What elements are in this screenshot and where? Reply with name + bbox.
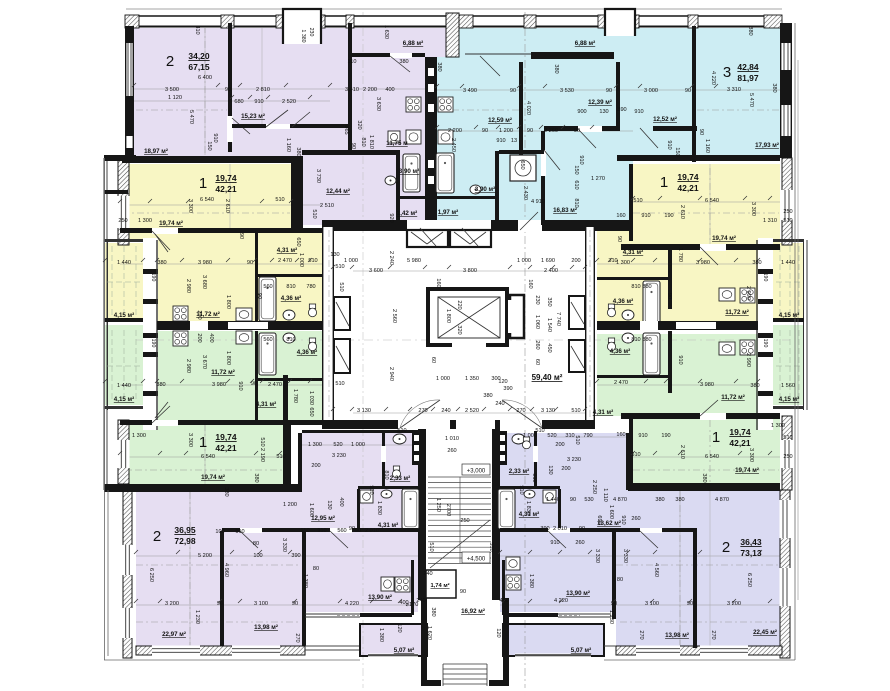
svg-text:90: 90 [666,293,672,299]
svg-text:3 330: 3 330 [594,549,600,563]
svg-text:780: 780 [306,284,315,290]
svg-text:910: 910 [237,381,243,390]
svg-text:910: 910 [212,133,218,142]
svg-text:6 400: 6 400 [198,75,212,81]
svg-text:90: 90 [482,128,488,134]
svg-text:1 380: 1 380 [528,574,534,588]
svg-text:120: 120 [396,623,402,632]
svg-text:81,97: 81,97 [737,73,759,83]
svg-text:810: 810 [286,284,295,290]
svg-text:910: 910 [677,355,683,364]
svg-text:3,90 м²: 3,90 м² [399,168,419,175]
svg-text:36,43: 36,43 [740,537,762,547]
svg-text:240: 240 [423,571,432,577]
svg-text:3 490: 3 490 [463,88,477,94]
svg-text:90: 90 [616,236,622,242]
svg-text:1 000: 1 000 [517,258,531,264]
svg-text:2 610: 2 610 [679,205,685,219]
svg-text:510: 510 [783,218,792,224]
svg-text:560: 560 [337,528,346,534]
svg-text:310: 310 [194,25,200,34]
svg-text:270: 270 [294,633,300,642]
svg-text:1 600: 1 600 [608,505,614,519]
svg-text:380: 380 [399,59,408,65]
svg-text:130: 130 [326,500,332,509]
svg-text:19,74 м²: 19,74 м² [735,467,759,474]
svg-text:5,07 м²: 5,07 м² [394,647,414,654]
svg-text:1 200: 1 200 [283,502,297,508]
svg-text:3 980: 3 980 [700,382,714,388]
svg-text:160: 160 [527,279,533,288]
svg-text:73,13: 73,13 [740,548,762,558]
svg-text:610: 610 [573,180,579,189]
svg-text:390: 390 [540,526,549,532]
svg-text:2 610: 2 610 [679,445,685,459]
svg-text:110: 110 [348,59,357,65]
svg-text:19,74: 19,74 [677,172,699,182]
svg-text:1 780: 1 780 [677,248,683,262]
svg-text:90: 90 [217,601,223,607]
svg-text:650: 650 [295,237,301,246]
svg-text:1,42 м²: 1,42 м² [397,210,417,217]
svg-text:520: 520 [333,442,342,448]
svg-text:270: 270 [516,408,525,414]
svg-text:200: 200 [196,310,202,319]
svg-text:60: 60 [534,359,540,365]
svg-text:19,74 м²: 19,74 м² [712,235,736,242]
svg-text:90: 90 [687,601,693,607]
svg-text:920: 920 [388,213,394,222]
svg-text:1 300: 1 300 [771,423,785,429]
svg-text:220: 220 [456,300,462,309]
svg-text:6,88 м²: 6,88 м² [403,40,423,47]
svg-text:3 230: 3 230 [567,457,581,463]
svg-text:1 000: 1 000 [351,442,365,448]
svg-text:520: 520 [547,433,556,439]
svg-text:150: 150 [206,141,212,150]
svg-text:1 830: 1 830 [525,501,531,515]
svg-text:4,36 м²: 4,36 м² [613,298,633,305]
svg-text:3 800: 3 800 [463,268,477,274]
svg-text:260: 260 [447,448,456,454]
svg-text:3 200: 3 200 [165,601,179,607]
svg-text:120: 120 [498,379,507,385]
svg-text:42,21: 42,21 [729,438,751,448]
svg-text:3 300: 3 300 [750,202,756,216]
svg-text:4 220: 4 220 [710,71,716,85]
svg-text:1 230: 1 230 [194,610,200,624]
svg-text:2 260: 2 260 [544,128,558,134]
svg-text:160: 160 [435,278,441,287]
svg-text:1 540: 1 540 [546,318,552,332]
svg-text:3 680: 3 680 [201,275,207,289]
svg-text:1 300: 1 300 [132,433,146,439]
svg-text:1 200: 1 200 [499,128,513,134]
svg-text:90: 90 [225,87,231,93]
svg-text:2 470: 2 470 [278,258,292,264]
svg-text:4,31 м²: 4,31 м² [256,401,276,408]
svg-text:100: 100 [253,553,262,559]
svg-text:2 520: 2 520 [282,99,296,105]
svg-text:17,93 м²: 17,93 м² [755,142,779,149]
svg-text:16,92 м²: 16,92 м² [461,608,485,615]
svg-text:1 380: 1 380 [302,574,308,588]
svg-text:380: 380 [750,383,759,389]
svg-text:13,98 м²: 13,98 м² [254,624,278,631]
svg-text:680: 680 [234,99,243,105]
svg-text:12,44 м²: 12,44 м² [326,188,350,195]
svg-text:380: 380 [430,607,436,616]
svg-text:390: 390 [617,107,626,113]
svg-text:510: 510 [308,258,317,264]
svg-text:3 500: 3 500 [165,87,179,93]
svg-text:3 100: 3 100 [254,601,268,607]
svg-text:250: 250 [783,454,792,460]
svg-text:1 800: 1 800 [225,351,231,365]
svg-text:270: 270 [418,408,427,414]
svg-text:810: 810 [631,337,640,343]
svg-text:90: 90 [355,528,361,534]
svg-text:6 540: 6 540 [200,197,214,203]
svg-text:5 980: 5 980 [407,258,421,264]
svg-text:1,74 м²: 1,74 м² [430,582,449,589]
svg-text:190: 190 [762,273,768,282]
svg-text:900: 900 [577,109,586,115]
svg-text:1 440: 1 440 [117,260,131,266]
svg-text:510: 510 [571,408,580,414]
svg-text:42,21: 42,21 [677,183,699,193]
svg-text:2 610: 2 610 [224,199,230,213]
svg-text:90: 90 [611,601,617,607]
svg-text:250: 250 [118,218,127,224]
svg-text:90: 90 [698,129,704,135]
svg-text:1 010: 1 010 [445,436,459,442]
svg-text:510: 510 [397,428,406,434]
svg-text:1 800: 1 800 [225,295,231,309]
svg-text:200: 200 [196,333,202,342]
svg-text:22,97 м²: 22,97 м² [162,631,186,638]
svg-text:2: 2 [722,539,730,556]
svg-text:560: 560 [263,284,272,290]
svg-text:380: 380 [483,393,492,399]
svg-text:1 620: 1 620 [426,626,432,640]
svg-text:910: 910 [368,485,374,494]
svg-text:1 300: 1 300 [308,442,322,448]
svg-text:4,15 м²: 4,15 м² [114,396,134,403]
svg-text:3 410: 3 410 [345,87,359,93]
svg-text:150: 150 [573,165,579,174]
svg-text:13,90 м²: 13,90 м² [566,590,590,597]
svg-text:380: 380 [223,487,229,496]
svg-text:130: 130 [599,109,608,115]
svg-text:3 310: 3 310 [727,87,741,93]
svg-text:1: 1 [199,434,207,451]
svg-text:450: 450 [546,343,552,352]
svg-text:80: 80 [313,566,319,572]
svg-text:810: 810 [286,337,295,343]
svg-text:90: 90 [460,589,466,595]
svg-text:4 870: 4 870 [715,497,729,503]
svg-text:42,21: 42,21 [215,443,237,453]
svg-text:910: 910 [634,109,643,115]
svg-text:4,31 м²: 4,31 м² [623,249,643,256]
svg-text:1 230: 1 230 [608,610,614,624]
svg-text:910: 910 [254,99,263,105]
svg-text:510: 510 [338,282,344,291]
svg-text:510: 510 [276,454,285,460]
svg-text:400: 400 [399,600,408,606]
svg-text:1 830: 1 830 [376,501,382,515]
svg-text:3 670: 3 670 [201,355,207,369]
svg-text:1 300: 1 300 [138,218,152,224]
svg-text:190: 190 [664,213,673,219]
svg-text:1 160: 1 160 [285,138,291,152]
svg-text:320: 320 [456,325,462,334]
svg-text:1 440: 1 440 [117,383,131,389]
svg-text:230: 230 [534,295,540,304]
svg-text:910: 910 [235,529,244,535]
svg-text:510: 510 [259,437,265,446]
svg-text:3 300: 3 300 [187,199,193,213]
svg-text:18,97 м²: 18,97 м² [144,148,168,155]
svg-text:240: 240 [441,408,450,414]
svg-text:810: 810 [631,284,640,290]
svg-text:16,83 м²: 16,83 м² [553,207,577,214]
svg-text:2,33 м²: 2,33 м² [390,475,410,482]
svg-text:3 130: 3 130 [541,408,555,414]
svg-text:6 540: 6 540 [705,198,719,204]
svg-text:1 300: 1 300 [616,260,630,266]
svg-text:650: 650 [300,528,309,534]
svg-text:3 330: 3 330 [622,549,628,563]
svg-text:1 060: 1 060 [534,315,540,329]
svg-text:2 980: 2 980 [185,279,191,293]
svg-text:60: 60 [430,357,436,363]
svg-text:380: 380 [295,147,301,156]
svg-text:4,31 м²: 4,31 м² [378,522,398,529]
svg-text:90: 90 [350,143,356,149]
svg-text:1 380: 1 380 [378,628,384,642]
svg-text:11,72 м²: 11,72 м² [725,309,749,316]
svg-text:880: 880 [642,337,651,343]
svg-text:510: 510 [488,542,494,551]
svg-text:380: 380 [701,473,707,482]
svg-text:160: 160 [616,213,625,219]
svg-text:200: 200 [571,258,580,264]
svg-text:3 100: 3 100 [645,601,659,607]
svg-text:350: 350 [546,297,552,306]
svg-text:650: 650 [519,160,525,169]
svg-text:80: 80 [617,577,623,583]
svg-text:11,75 м: 11,75 м [386,140,408,147]
svg-text:2 470: 2 470 [268,382,282,388]
svg-text:380: 380 [436,62,442,71]
svg-text:1 600: 1 600 [308,503,314,517]
svg-text:270: 270 [638,630,644,639]
svg-text:4 960: 4 960 [223,563,229,577]
svg-text:390: 390 [503,386,512,392]
svg-text:4,36 м²: 4,36 м² [610,348,630,355]
svg-text:200: 200 [311,463,320,469]
svg-text:380: 380 [156,382,165,388]
svg-text:510: 510 [275,197,284,203]
svg-text:36,95: 36,95 [174,525,196,535]
svg-text:15,23 м²: 15,23 м² [241,113,265,120]
svg-text:3 600: 3 600 [369,268,383,274]
svg-text:1 440: 1 440 [781,260,795,266]
svg-text:1 310: 1 310 [763,218,777,224]
svg-text:200: 200 [555,442,564,448]
svg-text:5 470: 5 470 [188,110,194,124]
svg-text:380: 380 [553,64,559,73]
svg-text:90: 90 [579,526,585,532]
svg-text:690: 690 [596,515,602,524]
svg-text:650: 650 [308,407,314,416]
svg-text:3 000: 3 000 [644,88,658,94]
svg-text:1 120: 1 120 [168,95,182,101]
svg-text:13,90 м²: 13,90 м² [368,594,392,601]
svg-text:3 730: 3 730 [315,169,321,183]
svg-text:160: 160 [616,432,625,438]
svg-text:190: 190 [150,339,156,348]
svg-text:67,15: 67,15 [188,62,210,72]
svg-text:2 510: 2 510 [320,203,334,209]
svg-text:2 450: 2 450 [450,138,456,152]
svg-text:11,72 м²: 11,72 м² [721,394,745,401]
svg-text:130: 130 [547,465,553,474]
svg-text:2: 2 [153,528,161,545]
svg-text:2 010: 2 010 [553,526,567,532]
svg-text:810: 810 [360,137,366,146]
svg-text:1 000: 1 000 [298,253,304,267]
svg-text:42,21: 42,21 [215,184,237,194]
svg-text:2: 2 [166,53,174,70]
svg-text:19,74: 19,74 [215,432,237,442]
svg-text:380: 380 [752,260,761,266]
svg-text:2 430: 2 430 [522,186,528,200]
svg-text:910: 910 [518,485,524,494]
svg-text:1 270: 1 270 [591,176,605,182]
svg-text:34,20: 34,20 [188,51,210,61]
svg-text:400: 400 [338,497,344,506]
svg-text:400: 400 [208,333,214,342]
svg-text:59,40 м²: 59,40 м² [532,373,563,382]
svg-text:11,72 м²: 11,72 м² [211,369,235,376]
svg-text:72,98: 72,98 [174,536,196,546]
svg-text:320: 320 [356,120,362,129]
svg-text:2 560: 2 560 [391,309,397,323]
svg-text:3 230: 3 230 [332,453,346,459]
svg-text:19,74: 19,74 [729,427,751,437]
svg-text:4 560: 4 560 [653,563,659,577]
svg-text:310: 310 [565,433,574,439]
svg-text:380: 380 [253,473,259,482]
svg-text:4 220: 4 220 [554,598,568,604]
svg-text:1 350: 1 350 [465,376,479,382]
svg-text:+3,000: +3,000 [467,469,486,475]
svg-text:880: 880 [642,284,651,290]
svg-text:7 740: 7 740 [555,312,561,326]
svg-text:260: 260 [575,540,584,546]
svg-text:1 250: 1 250 [435,498,441,512]
svg-text:4,15 м²: 4,15 м² [779,312,799,319]
svg-text:190: 190 [762,339,768,348]
svg-text:3 130: 3 130 [357,408,371,414]
svg-text:12,59 м²: 12,59 м² [488,117,512,124]
svg-text:240: 240 [416,598,425,604]
svg-text:1: 1 [660,174,668,191]
svg-text:6 250: 6 250 [148,568,154,582]
svg-text:90: 90 [606,88,612,94]
svg-text:1 030: 1 030 [308,391,314,405]
svg-text:2 990: 2 990 [745,286,751,300]
svg-text:910: 910 [578,155,584,164]
svg-text:240: 240 [495,401,504,407]
svg-text:810: 810 [573,198,579,207]
svg-text:4 220: 4 220 [345,601,359,607]
svg-text:3 530: 3 530 [560,88,574,94]
svg-text:6,88 м²: 6,88 м² [575,40,595,47]
svg-text:4,31 м²: 4,31 м² [277,247,297,254]
svg-text:90: 90 [570,497,576,503]
svg-text:910: 910 [641,213,650,219]
svg-text:5 470: 5 470 [748,93,754,107]
svg-text:380: 380 [655,497,664,503]
svg-text:380: 380 [771,83,777,92]
svg-text:910: 910 [550,540,559,546]
svg-text:19,74 м²: 19,74 м² [201,474,225,481]
svg-text:400: 400 [385,87,394,93]
svg-text:2 200: 2 200 [363,87,377,93]
svg-text:13,98 м²: 13,98 м² [665,632,689,639]
svg-text:4,36 м²: 4,36 м² [297,349,317,356]
svg-text:3 200: 3 200 [727,601,741,607]
svg-text:270: 270 [710,630,716,639]
svg-text:100: 100 [215,529,224,535]
svg-text:910: 910 [666,140,672,149]
svg-text:130: 130 [330,252,339,258]
svg-text:42,84: 42,84 [737,62,759,72]
svg-text:1 440: 1 440 [546,497,560,503]
svg-text:1 000: 1 000 [436,376,450,382]
svg-text:260: 260 [631,516,640,522]
svg-text:2 400: 2 400 [544,268,558,274]
svg-text:910: 910 [638,433,647,439]
svg-text:6 250: 6 250 [746,573,752,587]
svg-text:3 300: 3 300 [187,433,193,447]
svg-text:3 330: 3 330 [281,538,287,552]
svg-text:90: 90 [292,601,298,607]
svg-text:230: 230 [308,28,314,37]
svg-text:12,52 м²: 12,52 м² [653,116,677,123]
svg-text:2 980: 2 980 [185,359,191,373]
svg-text:510: 510 [783,435,792,441]
svg-text:90: 90 [685,88,691,94]
svg-text:1 630: 1 630 [383,25,389,39]
svg-text:510: 510 [631,452,640,458]
svg-text:2 810: 2 810 [256,87,270,93]
svg-text:2 200: 2 200 [448,128,462,134]
svg-text:22,45 м²: 22,45 м² [753,629,777,636]
svg-text:90: 90 [251,381,257,387]
svg-text:1 810: 1 810 [368,135,374,149]
svg-text:4 870: 4 870 [613,497,627,503]
svg-text:3 980: 3 980 [212,382,226,388]
svg-text:4 020: 4 020 [525,101,531,115]
svg-text:90: 90 [238,233,244,239]
svg-text:190: 190 [661,433,670,439]
svg-text:12,39 м²: 12,39 м² [588,99,612,106]
